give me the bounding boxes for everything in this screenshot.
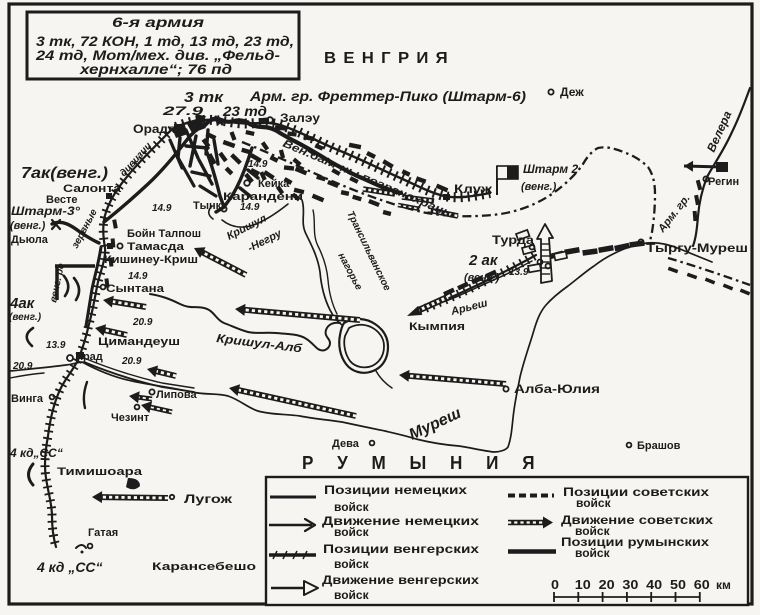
svg-text:Чезинт: Чезинт: [111, 412, 150, 424]
svg-text:Тыргу-Муреш: Тыргу-Муреш: [646, 241, 748, 255]
svg-text:Кымпия: Кымпия: [409, 321, 465, 333]
svg-text:Турда: Турда: [492, 233, 534, 247]
svg-text:40: 40: [646, 577, 662, 592]
svg-text:Деж: Деж: [560, 85, 584, 99]
svg-text:20.9: 20.9: [12, 361, 33, 372]
svg-text:Липова: Липова: [156, 389, 197, 401]
svg-text:Р У М Ы Н И Я: Р У М Ы Н И Я: [302, 453, 544, 473]
svg-text:13.9: 13.9: [509, 267, 529, 278]
svg-text:Дева: Дева: [332, 438, 360, 450]
svg-text:Штарм 2: Штарм 2: [523, 162, 578, 176]
svg-text:30: 30: [622, 577, 638, 592]
svg-text:Винга: Винга: [11, 393, 44, 405]
svg-text:Брашов: Брашов: [637, 440, 681, 452]
svg-text:Карандени: Карандени: [223, 191, 303, 203]
svg-text:2 ак: 2 ак: [468, 252, 499, 269]
svg-text:4ак: 4ак: [9, 295, 36, 312]
svg-text:войск: войск: [575, 546, 611, 560]
svg-text:Залэу: Залэу: [280, 111, 320, 125]
svg-text:Кишинеу-Криш: Кишинеу-Криш: [104, 254, 198, 266]
svg-text:14.9: 14.9: [152, 203, 172, 214]
svg-text:Цимандеуш: Цимандеуш: [98, 336, 180, 348]
svg-text:(венг.): (венг.): [464, 272, 500, 284]
svg-text:Лугож: Лугож: [184, 492, 233, 506]
svg-text:войск: войск: [576, 496, 612, 510]
svg-text:27.9: 27.9: [161, 104, 203, 118]
svg-text:20.9: 20.9: [132, 317, 153, 328]
svg-text:войск: войск: [334, 557, 370, 571]
svg-text:10: 10: [575, 577, 591, 592]
svg-text:Тимишоара: Тимишоара: [57, 466, 143, 478]
svg-text:23 тд: 23 тд: [222, 103, 267, 119]
svg-text:Клуж: Клуж: [454, 182, 493, 196]
svg-text:14.9: 14.9: [240, 202, 260, 213]
svg-text:хернхалле“; 76 пд: хернхалле“; 76 пд: [79, 61, 233, 77]
svg-text:Позиции венгерских: Позиции венгерских: [323, 542, 479, 556]
svg-text:Карансебешо: Карансебешо: [152, 561, 256, 573]
svg-text:Дьюла: Дьюла: [11, 234, 49, 246]
svg-text:Арад: Арад: [75, 351, 103, 363]
svg-text:км: км: [716, 578, 731, 592]
svg-text:Движение венгерских: Движение венгерских: [322, 573, 479, 587]
svg-text:20: 20: [599, 577, 615, 592]
svg-text:0: 0: [551, 577, 559, 592]
svg-text:Гатая: Гатая: [88, 527, 118, 539]
svg-text:4 кд „СС“: 4 кд „СС“: [36, 559, 103, 575]
svg-text:20.9: 20.9: [121, 356, 142, 367]
svg-text:4 кд„СС“: 4 кд„СС“: [9, 446, 63, 460]
svg-text:(венг.): (венг.): [9, 312, 42, 323]
svg-text:Штарм-3°: Штарм-3°: [11, 204, 80, 218]
svg-text:6-я армия: 6-я армия: [112, 14, 204, 30]
svg-text:войск: войск: [334, 588, 370, 602]
svg-text:(венг.): (венг.): [521, 181, 557, 193]
svg-text:ВЕНГРИЯ: ВЕНГРИЯ: [324, 50, 455, 67]
svg-text:14.9: 14.9: [248, 159, 268, 170]
svg-text:(венг.): (венг.): [10, 220, 46, 232]
svg-text:войск: войск: [334, 500, 370, 514]
svg-text:Позиции немецких: Позиции немецких: [324, 483, 467, 497]
svg-text:7ак(венг.): 7ак(венг.): [21, 165, 108, 182]
svg-text:Тамасда: Тамасда: [127, 241, 185, 253]
svg-text:60: 60: [694, 577, 710, 592]
svg-text:Регин: Регин: [708, 176, 739, 188]
svg-text:14.9: 14.9: [128, 271, 148, 282]
svg-text:Тынка: Тынка: [193, 200, 228, 212]
svg-text:Бойн Талпош: Бойн Талпош: [127, 228, 201, 240]
svg-text:Кейка: Кейка: [258, 178, 290, 190]
svg-text:13.9: 13.9: [46, 340, 66, 351]
svg-text:Алба-Юлия: Алба-Юлия: [514, 382, 600, 396]
svg-text:Орадя: Орадя: [133, 122, 176, 136]
svg-text:Арм. гр. Фреттер-Пико (Штарм-6: Арм. гр. Фреттер-Пико (Штарм-6): [249, 88, 526, 104]
svg-text:Сынтана: Сынтана: [106, 283, 165, 295]
svg-text:войск: войск: [334, 525, 370, 539]
svg-text:50: 50: [670, 577, 686, 592]
